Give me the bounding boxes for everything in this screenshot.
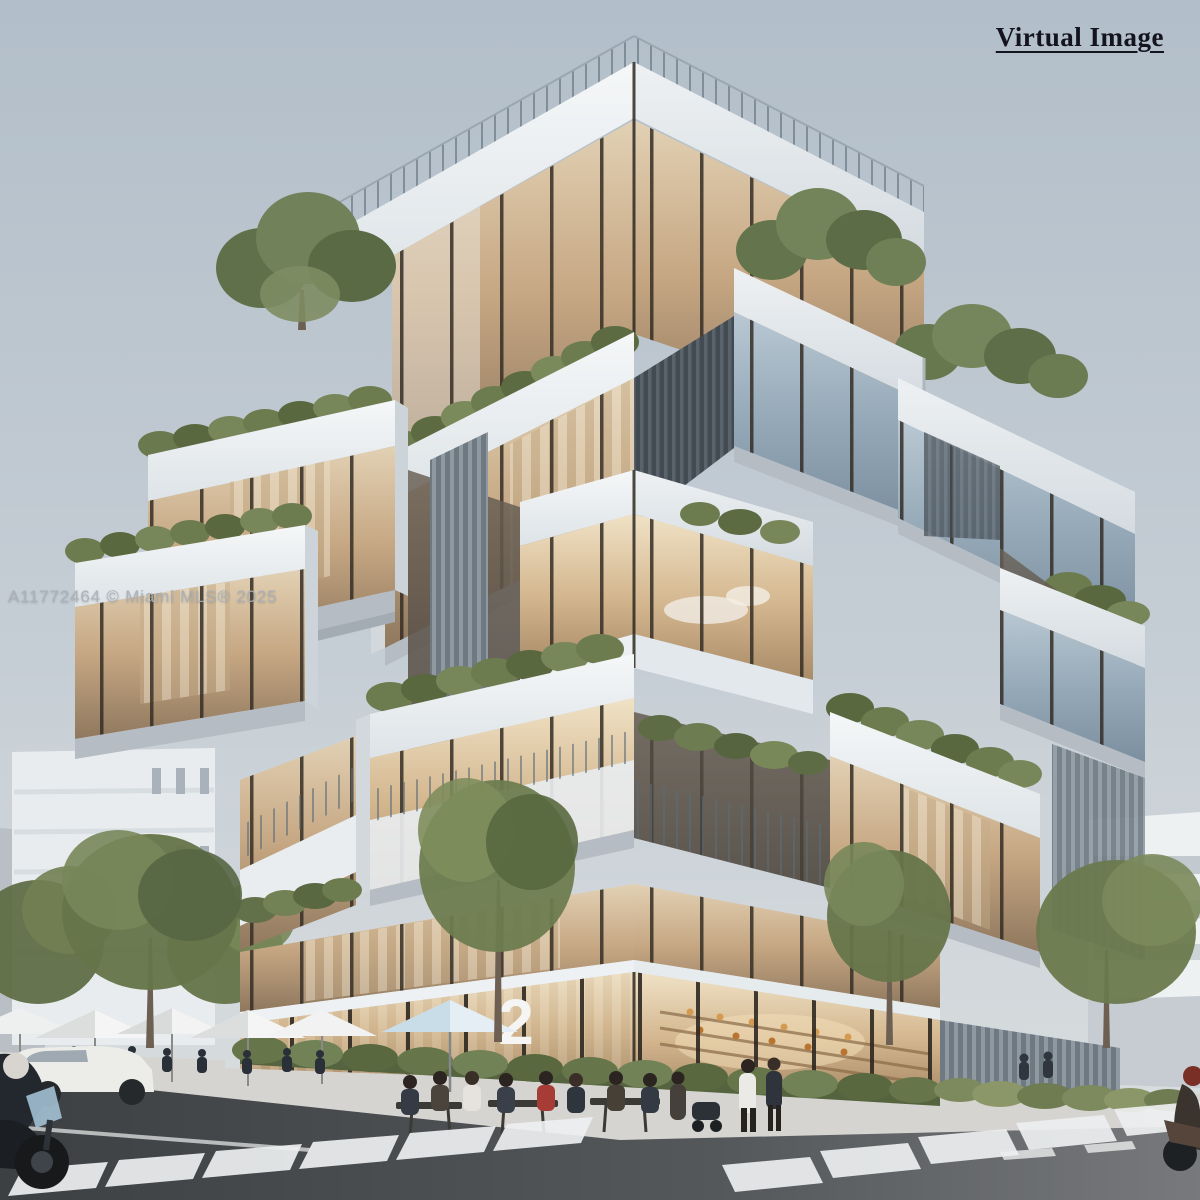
virtual-image-label: Virtual Image: [996, 22, 1164, 53]
far-left-lower-box: [75, 525, 318, 759]
listing-photo: 2: [0, 0, 1200, 1200]
mls-watermark: A11772464 © Miami MLS® 2025: [8, 587, 277, 607]
storefront-unit-number: 2: [498, 986, 534, 1058]
